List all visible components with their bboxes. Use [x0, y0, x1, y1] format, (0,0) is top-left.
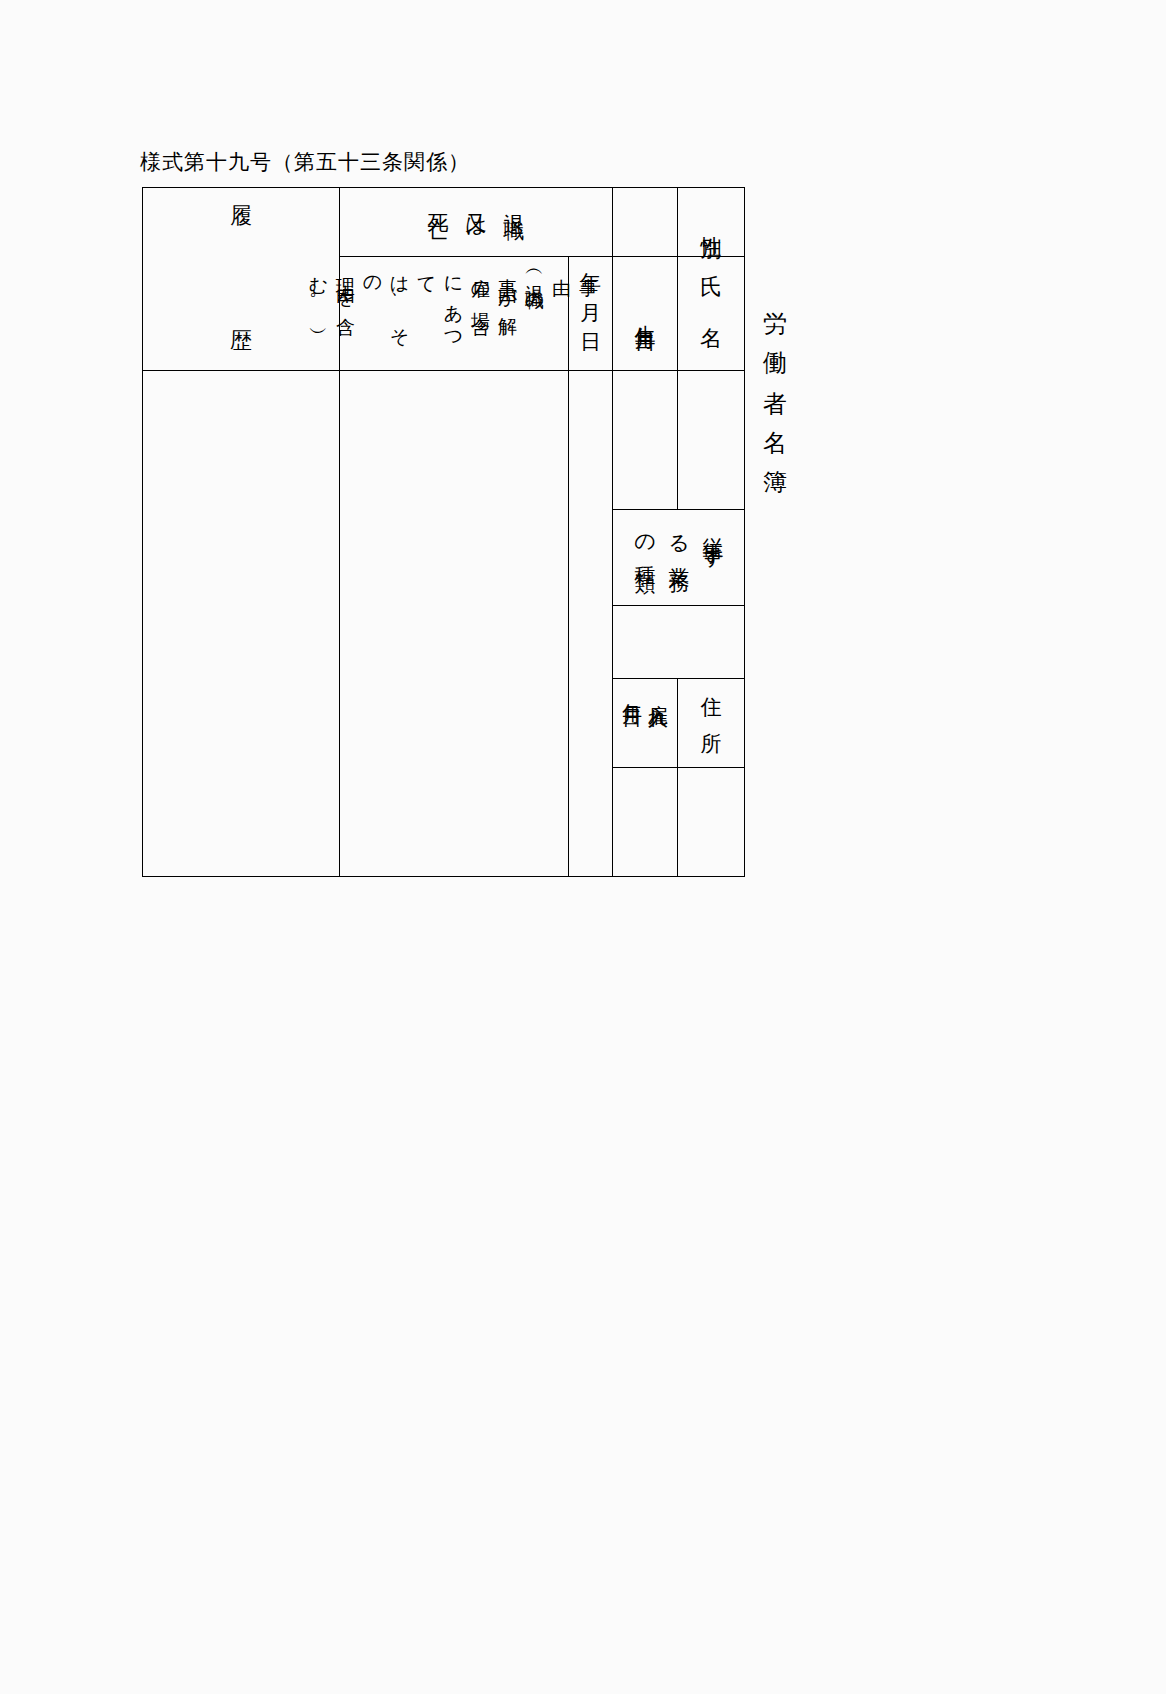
reason-note-col: は、その	[360, 263, 414, 370]
form-title: 様式第十九号（第五十三条関係）	[140, 148, 470, 176]
hire-date-header-col: 雇入れ	[648, 688, 669, 767]
gender-header-cell: 性別	[677, 187, 745, 257]
work-type-header-col: 従事す	[702, 520, 723, 605]
reason-note-col: 雇の場合	[468, 263, 495, 370]
gender-header-label: 性別	[697, 219, 725, 225]
register-title: 労働者名簿	[759, 292, 791, 492]
birthdate-header-cell: 生年月日	[612, 256, 678, 371]
retirement-death-header-cell: 退職 又は 死亡	[339, 187, 613, 257]
name-header-char-top: 氏	[700, 272, 722, 302]
retirement-header-col: 退職	[499, 197, 529, 256]
document-page: 様式第十九号（第五十三条関係） 履 歴 退職 又は 死亡 性別 事由 （退職の …	[0, 0, 1166, 1694]
history-header-char-top: 履	[230, 201, 252, 231]
reason-note-col: 理由を含	[333, 263, 360, 370]
retirement-reason-note-cell: 事由 （退職の 事由が解 雇の場合 にあつて は、その 理由を含 む。）	[339, 256, 569, 371]
work-type-header-cell: 従事す る業務 の種類	[612, 509, 745, 606]
blank-header-cell	[612, 187, 678, 257]
retirement-header-col: 死亡	[423, 197, 453, 256]
work-type-data-cell	[612, 605, 745, 679]
birthdate-header-label: 生年月日	[631, 308, 659, 320]
retirement-reason-data-cell	[339, 370, 569, 877]
reason-note-col: （退職の	[522, 263, 549, 370]
history-data-cell	[142, 370, 340, 877]
date-header-char: 月	[580, 299, 601, 327]
address-data-cell	[677, 767, 745, 877]
address-header-cell: 住 所	[677, 678, 745, 768]
reason-note-col: 事由が解	[495, 263, 522, 370]
date-header-cell: 年 月 日	[568, 256, 613, 371]
name-data-cell	[677, 370, 745, 510]
history-header-char-bottom: 歴	[230, 326, 252, 356]
date-header-char: 年	[580, 269, 601, 297]
name-header-char-bottom: 名	[700, 324, 722, 354]
work-type-header-col: の種類	[634, 520, 655, 605]
hire-date-header-col: 年月日	[622, 688, 643, 767]
name-header-cell: 氏 名	[677, 256, 745, 371]
retirement-header-col: 又は	[461, 197, 491, 256]
work-type-header-col: る業務	[668, 520, 689, 605]
address-header-char-bottom: 所	[701, 730, 722, 758]
birthdate-data-cell	[612, 370, 678, 510]
address-header-char-top: 住	[701, 693, 722, 721]
date-header-char: 日	[580, 328, 601, 356]
retirement-date-data-cell	[568, 370, 613, 877]
hire-date-header-cell: 雇入れ 年月日	[612, 678, 678, 768]
hire-date-data-cell	[612, 767, 678, 877]
reason-note-col: にあつて	[414, 263, 468, 370]
reason-note-col: む。）	[306, 263, 333, 370]
